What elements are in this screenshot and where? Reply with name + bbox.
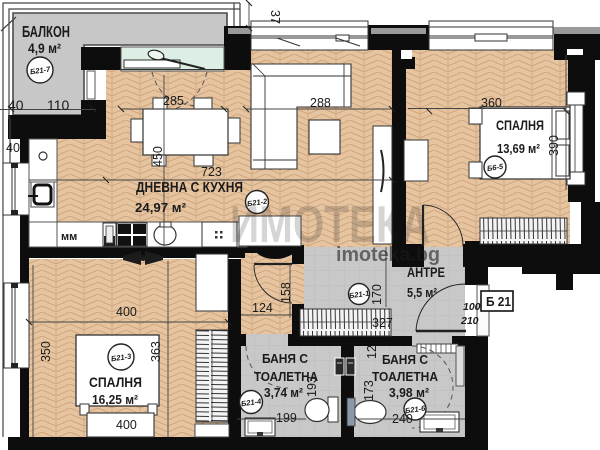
svg-text:37: 37 — [268, 10, 282, 24]
svg-text:3,98 м²: 3,98 м² — [389, 386, 429, 400]
svg-text:110: 110 — [47, 97, 70, 113]
svg-text:360: 360 — [481, 96, 502, 110]
svg-text:199: 199 — [276, 411, 297, 425]
svg-text:ДНЕВНА С КУХНЯ: ДНЕВНА С КУХНЯ — [136, 180, 243, 196]
svg-text:40: 40 — [8, 97, 24, 113]
svg-text:СПАЛНЯ: СПАЛНЯ — [496, 118, 544, 133]
svg-text:173: 173 — [362, 380, 376, 401]
svg-text:390: 390 — [547, 135, 561, 156]
svg-text:240: 240 — [392, 412, 413, 426]
svg-text:327: 327 — [372, 316, 393, 330]
svg-text:БАЛКОН: БАЛКОН — [22, 24, 70, 41]
svg-text:12: 12 — [365, 345, 379, 359]
svg-text:13,69 м²: 13,69 м² — [497, 142, 540, 156]
svg-text:723: 723 — [201, 165, 222, 179]
svg-text:ТОАЛЕТНА: ТОАЛЕТНА — [372, 370, 438, 384]
svg-text:400: 400 — [116, 418, 137, 432]
svg-text:363: 363 — [149, 341, 163, 362]
svg-text:Б 21: Б 21 — [486, 294, 511, 309]
svg-text:124: 124 — [252, 301, 273, 315]
svg-text:158: 158 — [279, 282, 293, 303]
svg-text:193: 193 — [305, 376, 319, 397]
svg-text:100: 100 — [463, 301, 481, 313]
svg-text:АНТРЕ: АНТРЕ — [407, 265, 445, 280]
svg-text:СПАЛНЯ: СПАЛНЯ — [89, 374, 142, 390]
svg-text:400: 400 — [116, 305, 137, 319]
svg-text:16,25 м²: 16,25 м² — [92, 392, 139, 407]
svg-text:350: 350 — [39, 341, 53, 362]
svg-text:450: 450 — [151, 146, 165, 167]
svg-text:288: 288 — [310, 96, 331, 110]
svg-text:БАНЯ С: БАНЯ С — [382, 353, 428, 367]
svg-text:24,97 м²: 24,97 м² — [135, 200, 187, 215]
svg-text:40: 40 — [6, 141, 20, 155]
svg-text:imoteka.bg: imoteka.bg — [336, 244, 440, 266]
svg-text:210: 210 — [460, 315, 479, 327]
svg-text:мм: мм — [61, 231, 77, 243]
svg-text:5,5 м²: 5,5 м² — [407, 286, 437, 300]
svg-text:285: 285 — [163, 94, 184, 108]
svg-text:4,9 м²: 4,9 м² — [28, 41, 61, 56]
svg-text:170: 170 — [370, 284, 384, 305]
svg-text:3,74 м²: 3,74 м² — [264, 386, 303, 400]
svg-text:БАНЯ С: БАНЯ С — [262, 352, 308, 366]
